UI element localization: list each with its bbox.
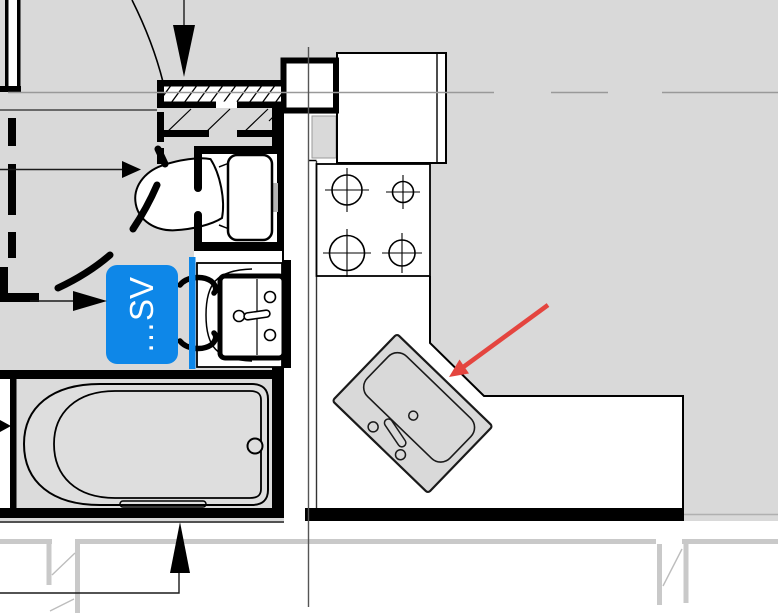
- svg-text:…SV: …SV: [123, 277, 160, 354]
